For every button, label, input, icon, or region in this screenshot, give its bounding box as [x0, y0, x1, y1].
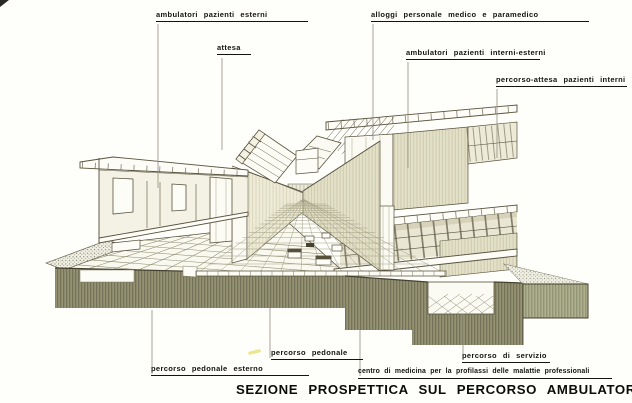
- photo-corner-mark: [0, 0, 9, 7]
- label-percorso-attesa-interni: percorso-attesa pazienti interni: [496, 76, 627, 87]
- label-attesa: attesa: [217, 44, 251, 55]
- architectural-drawing: [0, 0, 632, 403]
- label-percorso-pedonale: percorso pedonale: [271, 349, 363, 360]
- trench-cut: [80, 270, 134, 282]
- service-trench: [428, 282, 494, 314]
- drawing-title: SEZIONE PROSPETTICA SUL PERCORSO AMBULAT…: [236, 382, 632, 397]
- label-percorso-pedonale-esterno: percorso pedonale esterno: [151, 365, 309, 376]
- label-percorso-di-servizio: percorso di servizio: [462, 352, 550, 363]
- label-centro-di-medicina: centro di medicina per la profilassi del…: [358, 368, 612, 379]
- label-ambulatori-interni-esterni: ambulatori pazienti interni-esterni: [406, 49, 540, 60]
- ground-section: [55, 264, 588, 345]
- architectural-board: ambulatori pazienti esterni attesa allog…: [0, 0, 632, 403]
- label-ambulatori-pazienti-esterni: ambulatori pazienti esterni: [156, 11, 308, 22]
- highlight-mark: [248, 349, 261, 355]
- label-alloggi-personale: alloggi personale medico e paramedico: [371, 11, 589, 22]
